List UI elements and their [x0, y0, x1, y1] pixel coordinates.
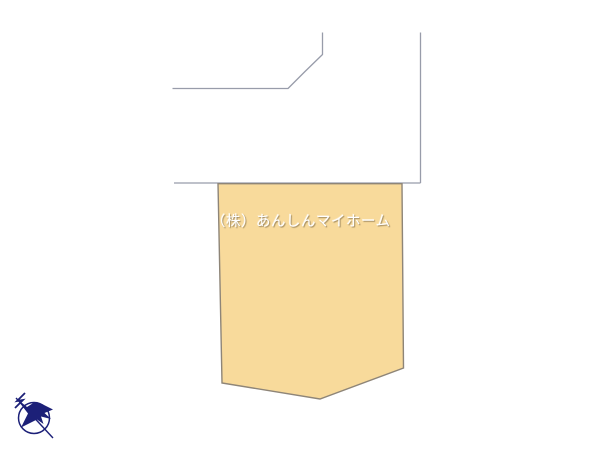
- adjacent-parcel-boundary-line: [173, 33, 323, 89]
- site-plan-canvas: （株）あんしんマイホーム: [0, 0, 600, 449]
- company-watermark-text: （株）あんしんマイホーム: [211, 213, 391, 231]
- north-compass-icon: [11, 390, 57, 442]
